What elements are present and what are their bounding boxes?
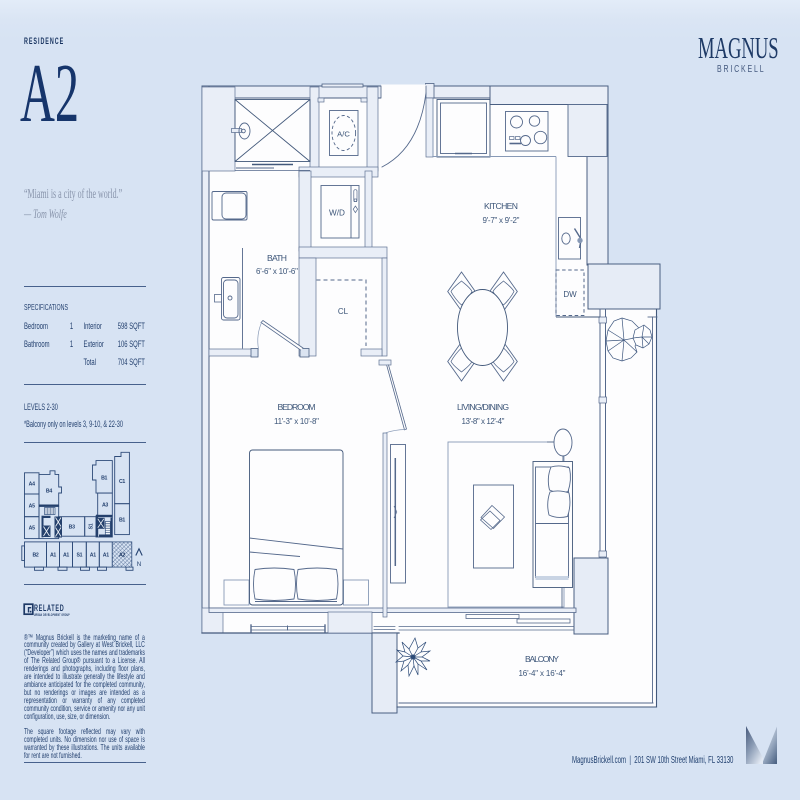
svg-text:CL: CL	[338, 307, 349, 316]
svg-text:BEDROOM: BEDROOM	[278, 402, 316, 412]
svg-text:A1: A1	[50, 553, 56, 559]
svg-text:LIVING/DINING: LIVING/DINING	[457, 402, 509, 412]
svg-text:13'-8" x 12'-4": 13'-8" x 12'-4"	[462, 417, 505, 426]
svg-text:A1: A1	[90, 553, 96, 559]
svg-text:A1: A1	[63, 553, 69, 559]
svg-text:B1: B1	[119, 518, 125, 524]
svg-text:BATH: BATH	[267, 253, 287, 263]
svg-text:16'-4" x 16'-4": 16'-4" x 16'-4"	[519, 669, 566, 678]
svg-text:N: N	[137, 561, 141, 568]
svg-text:A3: A3	[102, 503, 108, 509]
svg-text:W/D: W/D	[329, 209, 345, 218]
svg-text:B3: B3	[69, 525, 75, 531]
svg-text:A/C: A/C	[337, 130, 350, 139]
svg-text:A1: A1	[103, 553, 109, 559]
svg-text:6'-6" x 10'-6": 6'-6" x 10'-6"	[256, 267, 298, 276]
svg-text:A2: A2	[119, 553, 125, 559]
svg-text:BALCONY: BALCONY	[525, 654, 559, 664]
svg-text:A5: A5	[29, 504, 35, 510]
svg-text:A5: A5	[29, 526, 35, 532]
svg-text:B4: B4	[46, 489, 52, 495]
svg-text:B1: B1	[101, 476, 107, 482]
svg-text:11'-3" x 10'-8": 11'-3" x 10'-8"	[274, 417, 319, 426]
svg-text:S1: S1	[77, 553, 83, 559]
svg-text:9'-7" x 9'-2": 9'-7" x 9'-2"	[483, 216, 520, 225]
svg-text:DW: DW	[563, 290, 577, 299]
svg-text:S1: S1	[88, 523, 94, 529]
svg-text:A4: A4	[29, 482, 35, 488]
svg-text:B2: B2	[32, 553, 38, 559]
svg-text:C1: C1	[119, 479, 125, 485]
svg-text:KITCHEN: KITCHEN	[484, 201, 518, 211]
